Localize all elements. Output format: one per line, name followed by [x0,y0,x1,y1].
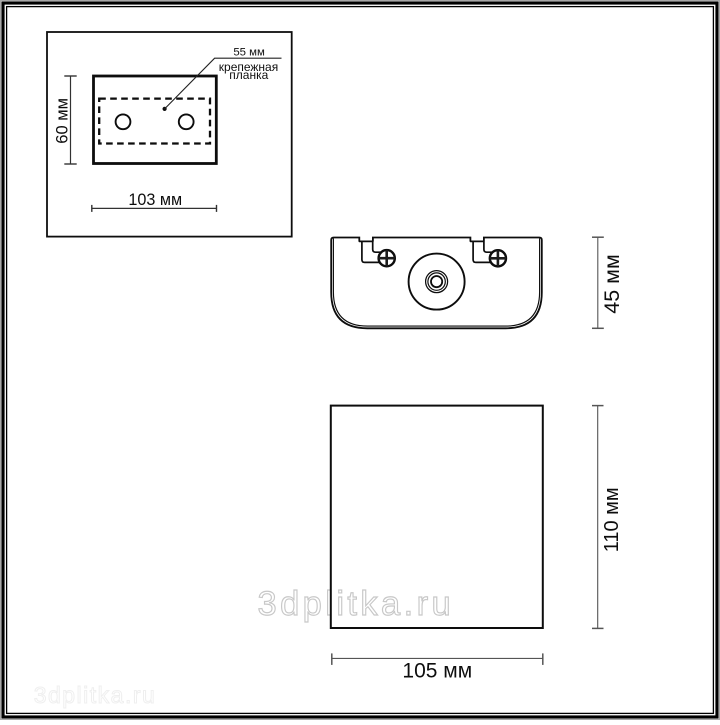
svg-text:60 мм: 60 мм [53,98,71,144]
svg-text:103 мм: 103 мм [128,191,182,209]
svg-text:55 мм: 55 мм [233,46,265,58]
svg-text:105 мм: 105 мм [402,659,472,682]
svg-text:3dplitka.ru: 3dplitka.ru [258,585,455,623]
svg-text:45 мм: 45 мм [600,254,624,313]
svg-text:планка: планка [229,68,268,82]
svg-text:110 мм: 110 мм [601,487,623,552]
svg-text:3dplitka.ru: 3dplitka.ru [34,682,157,708]
